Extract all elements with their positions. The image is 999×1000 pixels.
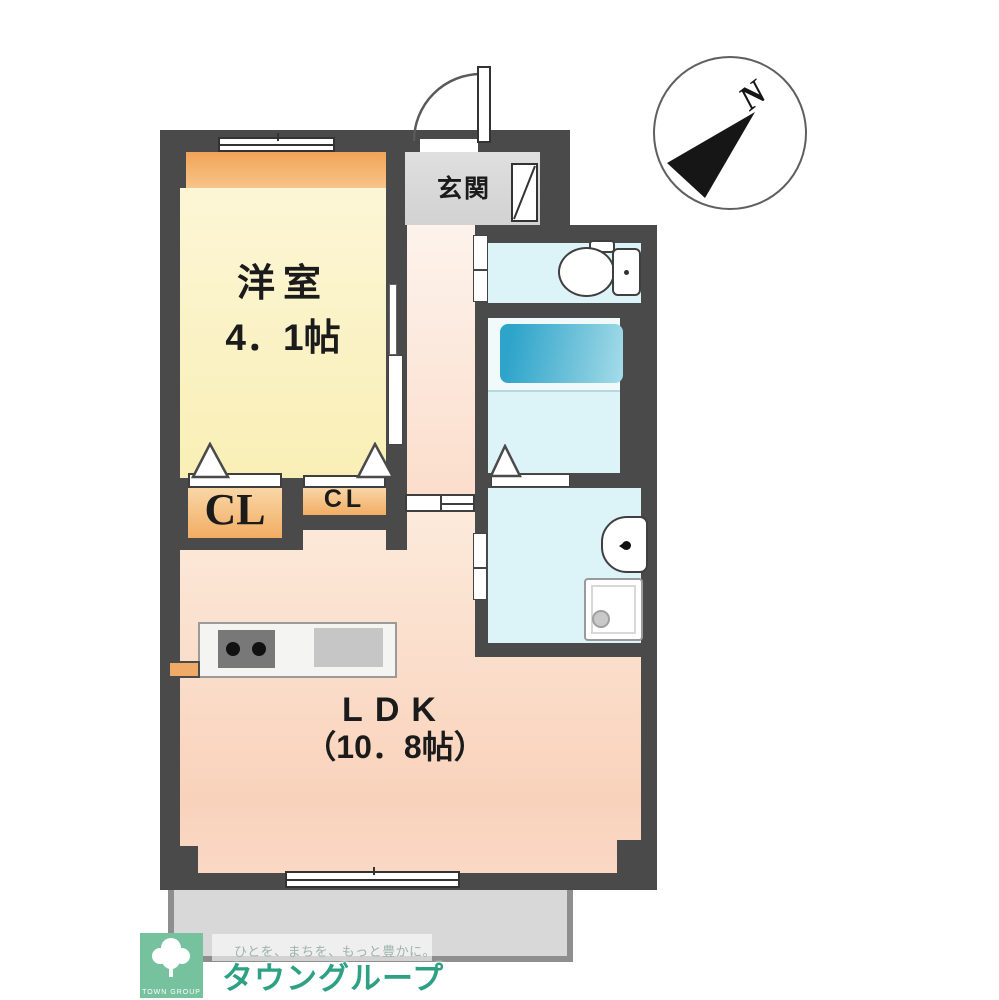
stove-burner-icon	[252, 642, 266, 656]
washbasin-icon	[601, 516, 648, 573]
hallway-floor	[407, 225, 475, 512]
western-room-size: 4．1帖	[164, 318, 402, 359]
kitchen-sink-icon	[314, 628, 383, 667]
window-sash-line	[287, 879, 458, 881]
hallway-ldk-sliding-door	[405, 494, 475, 512]
brand-text: タウングループ	[222, 953, 444, 998]
north-needle-icon	[650, 50, 810, 210]
window-side-shelf	[186, 152, 386, 188]
wall-corner-notch	[180, 846, 198, 873]
western-room-sliding-door	[388, 355, 403, 445]
front-door-leaf	[477, 66, 491, 143]
door-panel-line	[474, 269, 487, 271]
door-panel-line	[474, 567, 486, 569]
toilet-button-icon	[624, 270, 629, 275]
window-center-tick	[277, 133, 279, 141]
closet-large-label: CL	[188, 486, 282, 534]
western-room-label: 洋室	[180, 264, 386, 306]
tree-icon	[140, 933, 203, 981]
shoe-cabinet-icon	[511, 163, 538, 222]
drain-icon	[592, 610, 610, 628]
window-center-tick	[373, 867, 375, 875]
stove-burner-icon	[226, 642, 240, 656]
toilet-tank-icon	[612, 248, 641, 296]
washbasin-tap-icon	[622, 541, 631, 550]
floorplan-canvas: N 洋室 4．1帖 玄関 LDK （10．8帖） CL CL TOWN GROU…	[0, 0, 999, 1000]
bath-door-swing-icon	[489, 444, 523, 478]
closet-door-swing-icon	[191, 442, 231, 479]
kitchen-stove-icon	[218, 630, 275, 668]
closet-door-swing-icon	[356, 442, 396, 479]
town-group-logo: TOWN GROUP	[140, 933, 203, 998]
western-room-window	[218, 137, 335, 152]
bathtub-icon	[500, 324, 623, 383]
logo-box-text: TOWN GROUP	[140, 989, 203, 996]
ldk-balcony-window	[285, 871, 460, 888]
kitchen-end-panel	[168, 661, 200, 678]
toilet-icon	[558, 247, 615, 297]
door-panel-line	[440, 503, 473, 505]
washing-machine-pan-icon	[584, 578, 643, 641]
ldk-size: （10．8帖）	[240, 730, 550, 765]
closet-small-label: CL	[303, 486, 386, 514]
toilet-door	[473, 235, 488, 302]
washroom-door	[473, 533, 487, 600]
entrance-label: 玄関	[414, 176, 514, 204]
window-sash-line	[220, 144, 333, 146]
shoe-cabinet-diagonal	[513, 165, 536, 220]
ldk-label: LDK	[240, 692, 550, 729]
